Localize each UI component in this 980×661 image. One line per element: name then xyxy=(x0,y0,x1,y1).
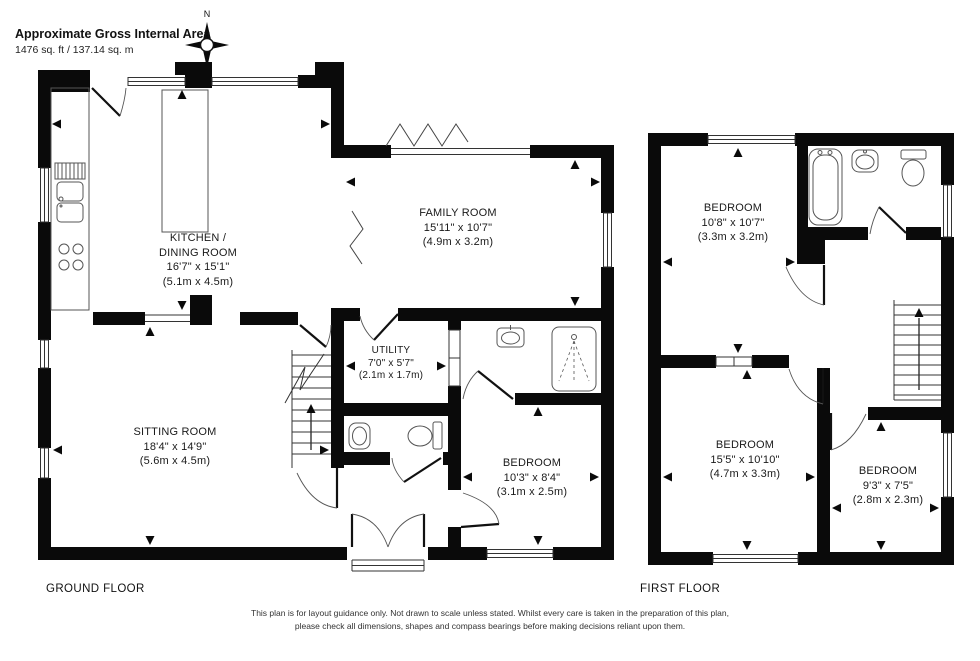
hob-icon xyxy=(59,244,83,270)
porch-steps xyxy=(352,560,424,571)
room-label-family: FAMILY ROOM 15'11" x 10'7" (4.9m x 3.2m) xyxy=(419,206,497,250)
room-name-line2: DINING ROOM xyxy=(159,246,237,261)
floorplan-drawing: N xyxy=(0,0,980,661)
room-dims-imperial: 18'4" x 14'9" xyxy=(133,440,216,455)
room-dims-metric: (5.1m x 4.5m) xyxy=(159,275,237,290)
room-dims-metric: (3.1m x 2.5m) xyxy=(497,485,567,500)
room-dims-imperial: 10'3" x 8'4" xyxy=(497,471,567,486)
room-dims-metric: (2.8m x 2.3m) xyxy=(853,493,923,508)
stairs-up-arrow-first xyxy=(915,308,924,317)
stairs-up-arrow xyxy=(307,404,316,413)
room-name: SITTING ROOM xyxy=(133,425,216,440)
floorplan-canvas: N Approximate Gross Internal Area 1476 s… xyxy=(0,0,980,661)
cloakroom-sink-icon xyxy=(349,423,370,449)
kitchen-island xyxy=(162,90,208,232)
room-label-sitting: SITTING ROOM 18'4" x 14'9" (5.6m x 4.5m) xyxy=(133,425,216,469)
room-dims-metric: (2.1m x 1.7m) xyxy=(359,370,423,383)
utility-folding-door xyxy=(449,330,460,386)
disclaimer-line1: This plan is for layout guidance only. N… xyxy=(0,607,980,620)
page-title: Approximate Gross Internal Area xyxy=(15,27,210,41)
room-dims-imperial: 15'5" x 10'10" xyxy=(710,453,780,468)
first-stairs xyxy=(894,300,941,400)
room-name: BEDROOM xyxy=(497,456,567,471)
kitchen-counter xyxy=(51,88,89,310)
shower-room-fixtures xyxy=(497,325,596,391)
disclaimer-line2: please check all dimensions, shapes and … xyxy=(0,620,980,633)
room-label-bedroom2: BEDROOM 15'5" x 10'10" (4.7m x 3.3m) xyxy=(710,438,780,482)
zigzag-stairs xyxy=(285,354,324,403)
room-name-line1: KITCHEN / xyxy=(159,231,237,246)
room-name: BEDROOM xyxy=(710,438,780,453)
room-dims-metric: (4.9m x 3.2m) xyxy=(419,235,497,250)
zigzag-family-top xyxy=(386,124,468,146)
room-dims-metric: (4.7m x 3.3m) xyxy=(710,467,780,482)
built-in-unit xyxy=(716,357,752,366)
shower-room-sink-icon xyxy=(497,325,524,347)
zigzag-family-left xyxy=(350,211,363,264)
room-dims-imperial: 9'3" x 7'5" xyxy=(853,479,923,494)
draining-board xyxy=(55,163,85,179)
ground-floor-label: GROUND FLOOR xyxy=(46,583,145,595)
cloakroom-toilet-icon xyxy=(408,422,442,449)
room-label-bedroom1: BEDROOM 10'8" x 10'7" (3.3m x 3.2m) xyxy=(698,201,768,245)
room-dims-imperial: 15'11" x 10'7" xyxy=(419,221,497,236)
bathroom-sink-icon xyxy=(852,150,878,172)
room-dims-imperial: 10'8" x 10'7" xyxy=(698,216,768,231)
bathroom-toilet-icon xyxy=(901,150,926,186)
gross-area-value: 1476 sq. ft / 137.14 sq. m xyxy=(15,44,134,56)
room-dims-imperial: 7'0" x 5'7" xyxy=(359,358,423,371)
room-name: BEDROOM xyxy=(698,201,768,216)
bath-icon xyxy=(809,149,842,225)
room-name: UTILITY xyxy=(359,345,423,358)
room-label-bedroom3: BEDROOM 9'3" x 7'5" (2.8m x 2.3m) xyxy=(853,464,923,508)
first-floor-label: FIRST FLOOR xyxy=(640,583,720,595)
bathroom-fixtures xyxy=(809,149,926,225)
kitchen-sink-icon xyxy=(57,182,83,222)
room-label-bedroom-ground: BEDROOM 10'3" x 8'4" (3.1m x 2.5m) xyxy=(497,456,567,500)
room-name: BEDROOM xyxy=(853,464,923,479)
room-name: FAMILY ROOM xyxy=(419,206,497,221)
north-label: N xyxy=(204,9,211,19)
room-label-utility: UTILITY 7'0" x 5'7" (2.1m x 1.7m) xyxy=(359,345,423,383)
shower-icon xyxy=(552,327,596,391)
room-label-kitchen-dining: KITCHEN / DINING ROOM 16'7" x 15'1" (5.1… xyxy=(159,231,237,289)
room-dims-metric: (3.3m x 3.2m) xyxy=(698,230,768,245)
room-dims-imperial: 16'7" x 15'1" xyxy=(159,260,237,275)
room-dims-metric: (5.6m x 4.5m) xyxy=(133,454,216,469)
cloakroom-fixtures xyxy=(349,422,442,449)
